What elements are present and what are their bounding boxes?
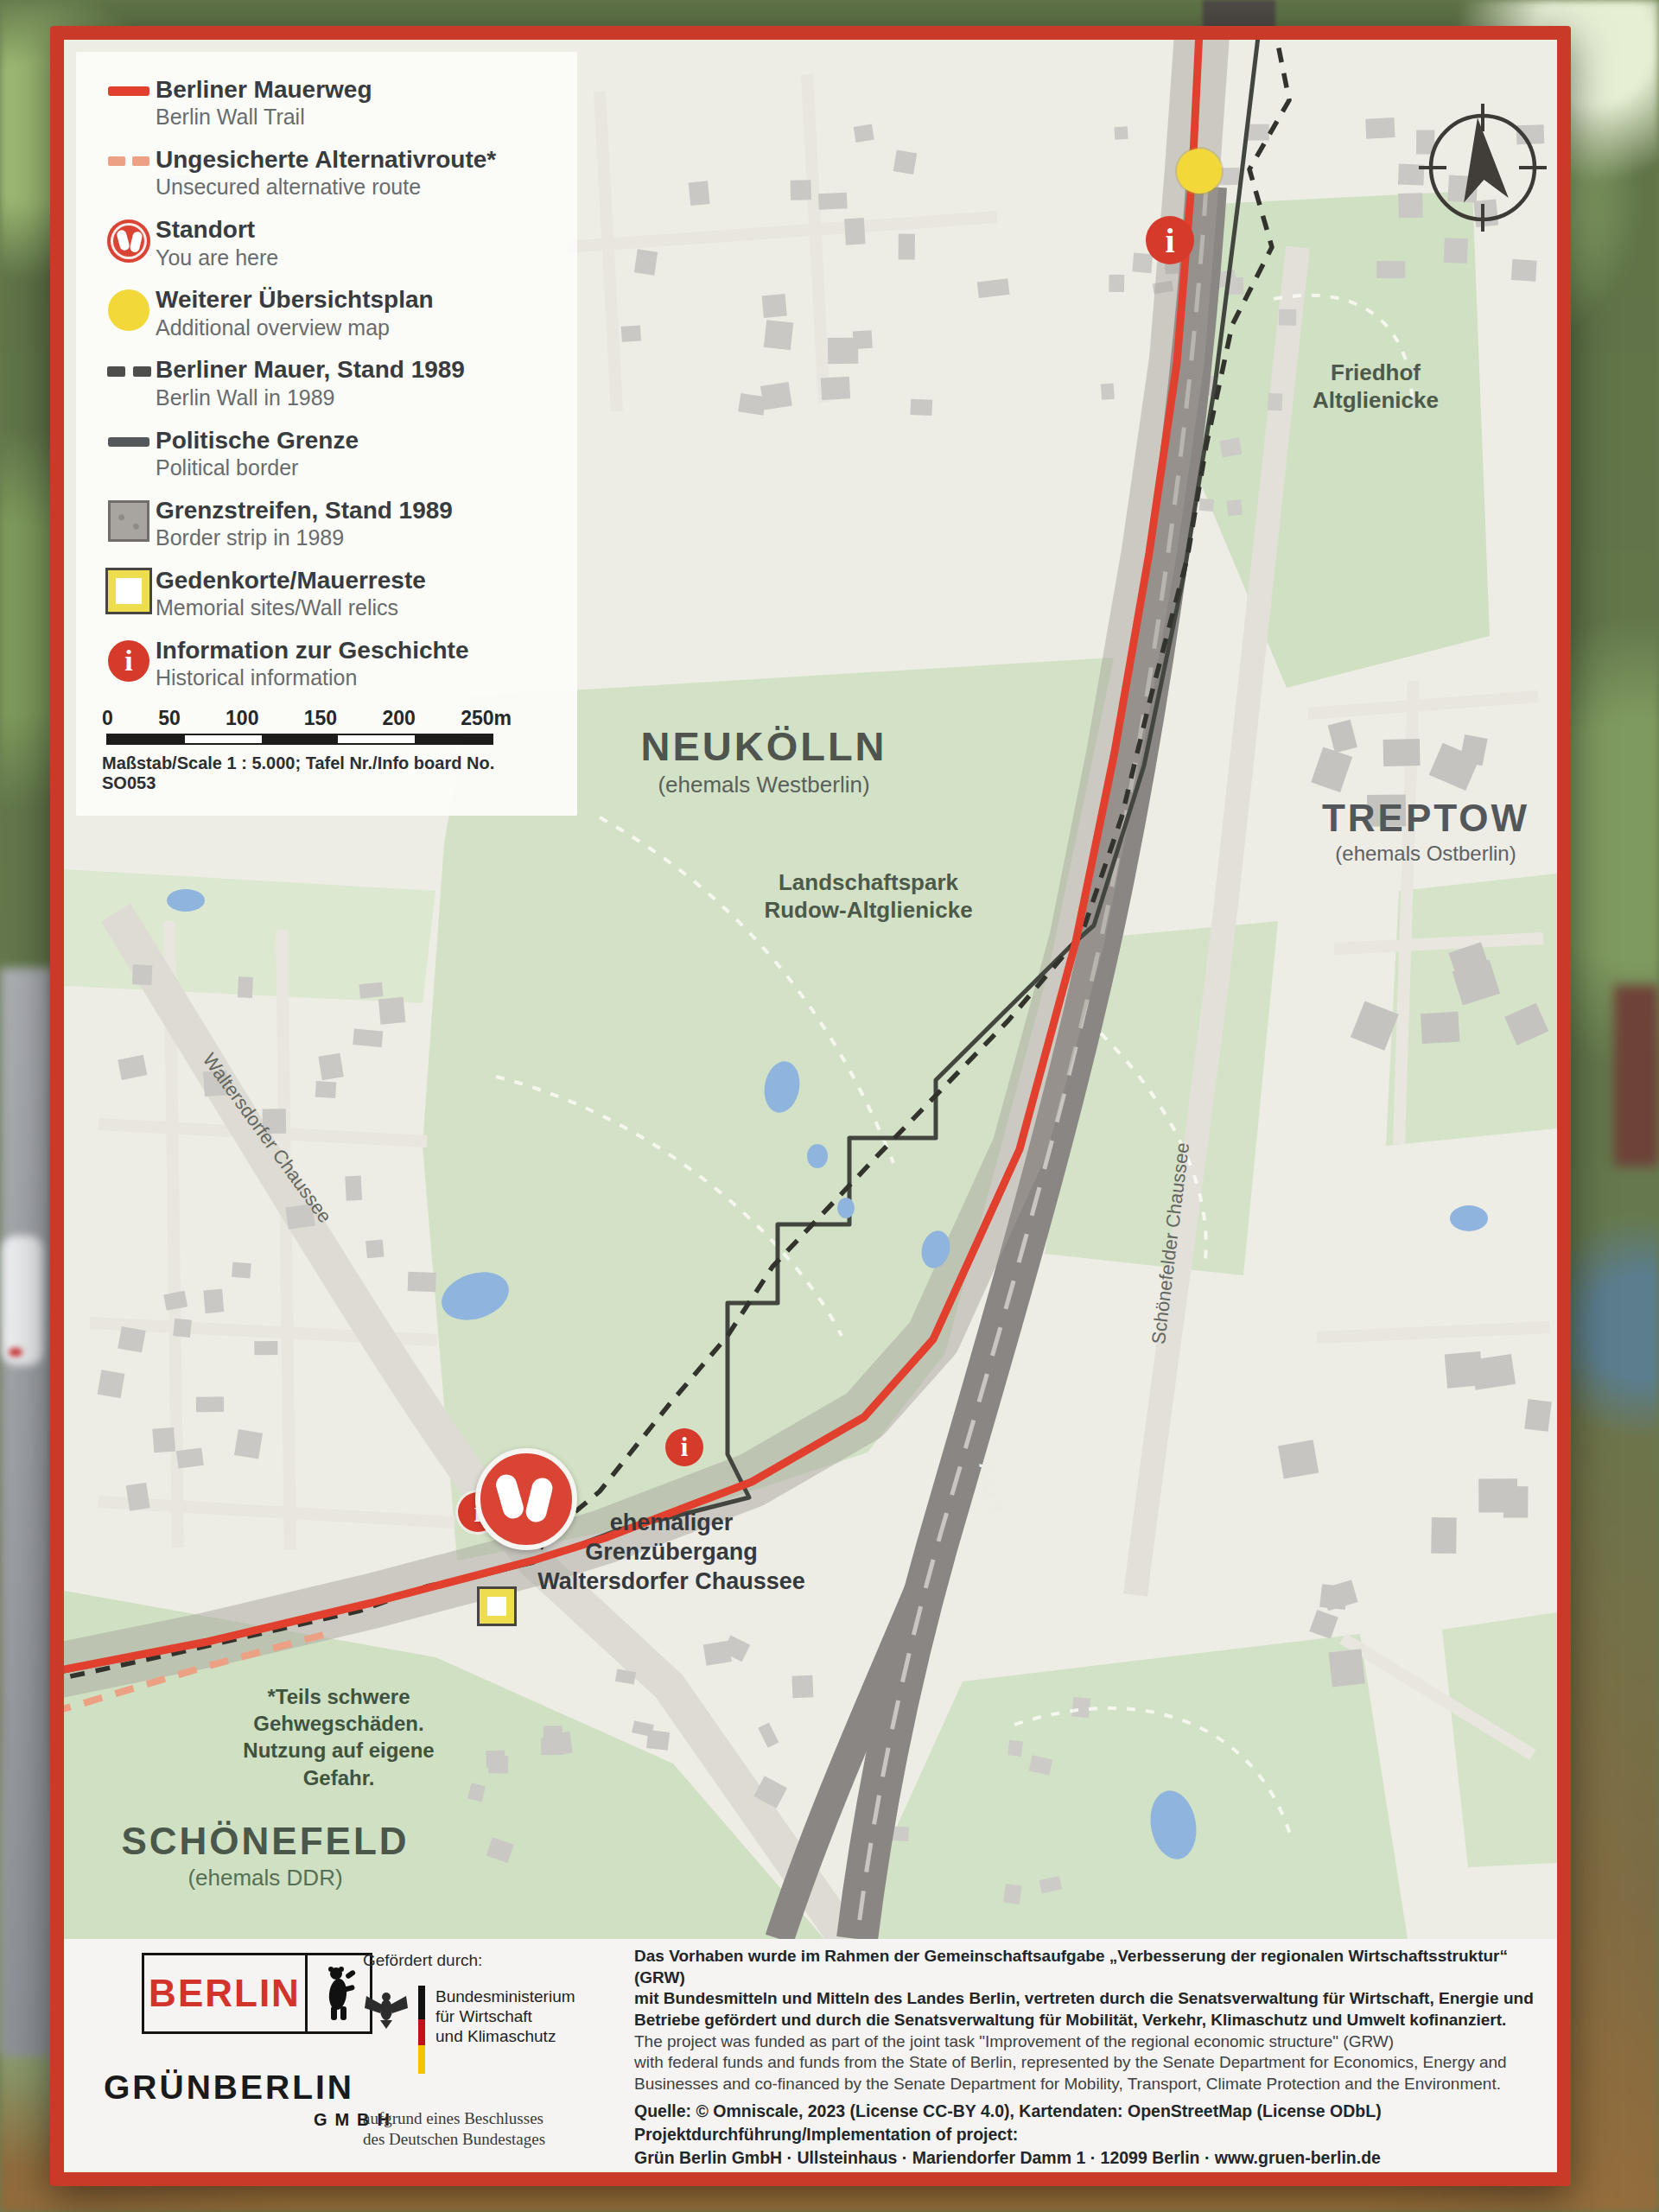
bundestag-note: aufgrund eines Beschlusses des Deutschen… xyxy=(363,2108,545,2150)
district-label-neukoelln: NEUKÖLLN (ehemals Westberlin) xyxy=(574,722,954,798)
funding-texts: Das Vorhaben wurde im Rahmen der Gemeins… xyxy=(634,1946,1548,2095)
alt-route-icon xyxy=(108,156,149,166)
german-flag-bar xyxy=(418,1986,425,2074)
memorial-site-marker xyxy=(480,1589,514,1624)
address-line: Grün Berlin GmbH · Ullsteinhaus · Marien… xyxy=(634,2146,1548,2170)
legend-label-de: Berliner Mauerweg xyxy=(156,76,372,103)
legend-label-en: Berlin Wall Trail xyxy=(156,105,372,130)
federal-eagle-icon xyxy=(363,1984,410,2031)
you-are-here-marker xyxy=(475,1448,577,1550)
berlin-wordmark: BERLIN xyxy=(144,1955,308,2031)
memorial-square-icon xyxy=(108,570,149,612)
legend-label-de: Grenzstreifen, Stand 1989 xyxy=(156,497,453,524)
street-background xyxy=(0,968,52,2056)
legend-item: Weiterer Übersichtsplan Additional overv… xyxy=(102,286,551,340)
legend-label-en: Historical information xyxy=(156,665,469,690)
house-roof xyxy=(1614,985,1659,1166)
ministry-logo: Bundesministerium für Wirtschaft und Kli… xyxy=(363,1984,575,2074)
footpath-warning-note: *Teils schwere Gehwegschäden. Nutzung au… xyxy=(192,1683,486,1791)
legend-label-de: Berliner Mauer, Stand 1989 xyxy=(156,356,465,383)
legend-label-en: Border strip in 1989 xyxy=(156,525,453,550)
district-subtitle: (ehemals Ostberlin) xyxy=(1296,842,1555,866)
info-marker-icon: i xyxy=(1146,216,1194,264)
funding-paragraph-de: Das Vorhaben wurde im Rahmen der Gemeins… xyxy=(634,1946,1548,2031)
funded-by-label: Gefördert durch: xyxy=(363,1951,482,1970)
legend-label-en: You are here xyxy=(156,245,278,270)
implementation-label: Projektdurchführung/Implementation of pr… xyxy=(634,2123,1548,2146)
district-label-schoenefeld: SCHÖNEFELD (ehemals DDR) xyxy=(79,1820,451,1891)
scale-tick: 150 xyxy=(304,707,337,730)
legend-label-de: Gedenkorte/Mauerreste xyxy=(156,567,426,594)
district-subtitle: (ehemals Westberlin) xyxy=(574,772,954,798)
legend-label-en: Berlin Wall in 1989 xyxy=(156,385,465,410)
scale-tick: 250m xyxy=(461,707,512,730)
cemetery-label: Friedhof Altglienicke xyxy=(1263,359,1488,414)
wall-dashed-icon xyxy=(107,366,151,377)
info-marker-icon: i xyxy=(665,1428,703,1466)
legend-label-de: Ungesicherte Alternativroute* xyxy=(156,146,496,173)
scale-tick: 0 xyxy=(102,707,113,730)
district-name: SCHÖNEFELD xyxy=(79,1820,451,1863)
info-icon: i xyxy=(108,640,149,682)
legend-label-en: Memorial sites/Wall relics xyxy=(156,595,426,620)
gruen-berlin-wordmark: GRÜNBERLIN xyxy=(104,2069,397,2107)
scale-tick: 100 xyxy=(226,707,258,730)
overview-dot-icon xyxy=(108,289,149,331)
berlin-bear-icon xyxy=(308,1955,370,2031)
district-subtitle: (ehemals DDR) xyxy=(79,1865,451,1891)
footprints-icon xyxy=(107,219,150,263)
scale-bar: 0 50 100 150 200 250m Maßstab/Scale 1 : … xyxy=(102,707,551,793)
political-border-icon xyxy=(108,437,149,447)
legend-label-en: Political border xyxy=(156,455,359,480)
legend-label-de: Information zur Geschichte xyxy=(156,637,469,664)
ministry-name: Bundesministerium für Wirtschaft und Kli… xyxy=(435,1984,575,2046)
map-legend: Berliner Mauerweg Berlin Wall Trail Unge… xyxy=(76,52,577,816)
legend-label-en: Additional overview map xyxy=(156,315,434,340)
legend-item: Berliner Mauerweg Berlin Wall Trail xyxy=(102,76,551,130)
scale-tick: 200 xyxy=(382,707,415,730)
district-name: NEUKÖLLN xyxy=(574,722,954,770)
map-source-line: Quelle: © Omniscale, 2023 (License CC-BY… xyxy=(634,2100,1548,2123)
berlin-logo: BERLIN xyxy=(142,1953,372,2034)
funding-paragraph-en: The project was funded as part of the jo… xyxy=(634,2031,1548,2095)
legend-item: Berliner Mauer, Stand 1989 Berlin Wall i… xyxy=(102,356,551,410)
legend-label-de: Politische Grenze xyxy=(156,427,359,454)
info-board: NEUKÖLLN (ehemals Westberlin) TREPTOW (e… xyxy=(50,26,1571,2186)
gruen-berlin-gmbh: GMBH xyxy=(104,2110,397,2130)
border-strip-icon xyxy=(108,500,149,542)
map: NEUKÖLLN (ehemals Westberlin) TREPTOW (e… xyxy=(64,40,1557,1939)
parked-car xyxy=(2,1236,43,1365)
legend-label-en: Unsecured alternative route xyxy=(156,175,496,200)
credit-lines: Quelle: © Omniscale, 2023 (License CC-BY… xyxy=(634,2100,1548,2170)
legend-item: Politische Grenze Political border xyxy=(102,427,551,480)
district-label-treptow: TREPTOW (ehemals Ostberlin) xyxy=(1296,797,1555,866)
district-name: TREPTOW xyxy=(1296,797,1555,840)
overview-map-marker xyxy=(1177,149,1222,194)
legend-item: Gedenkorte/Mauerreste Memorial sites/Wal… xyxy=(102,567,551,620)
trail-line-icon xyxy=(108,86,149,96)
legend-item: Standort You are here xyxy=(102,216,551,270)
park-label: Landschaftspark Rudow-Altglienicke xyxy=(700,869,1037,924)
sign-footer: BERLIN GRÜNBERLIN GMBH G xyxy=(64,1939,1557,2171)
compass-rose-icon xyxy=(1414,99,1552,237)
legend-label-de: Standort xyxy=(156,216,278,243)
scale-caption: Maßstab/Scale 1 : 5.000; Tafel Nr./Info … xyxy=(102,753,551,793)
gruen-berlin-logo: GRÜNBERLIN GMBH xyxy=(104,2069,397,2130)
car-taillight xyxy=(9,1348,22,1357)
scale-tick: 50 xyxy=(158,707,181,730)
legend-item: Ungesicherte Alternativroute* Unsecured … xyxy=(102,146,551,200)
legend-label-de: Weiterer Übersichtsplan xyxy=(156,286,434,313)
legend-item: i Information zur Geschichte Historical … xyxy=(102,637,551,690)
legend-item: Grenzstreifen, Stand 1989 Border strip i… xyxy=(102,497,551,550)
